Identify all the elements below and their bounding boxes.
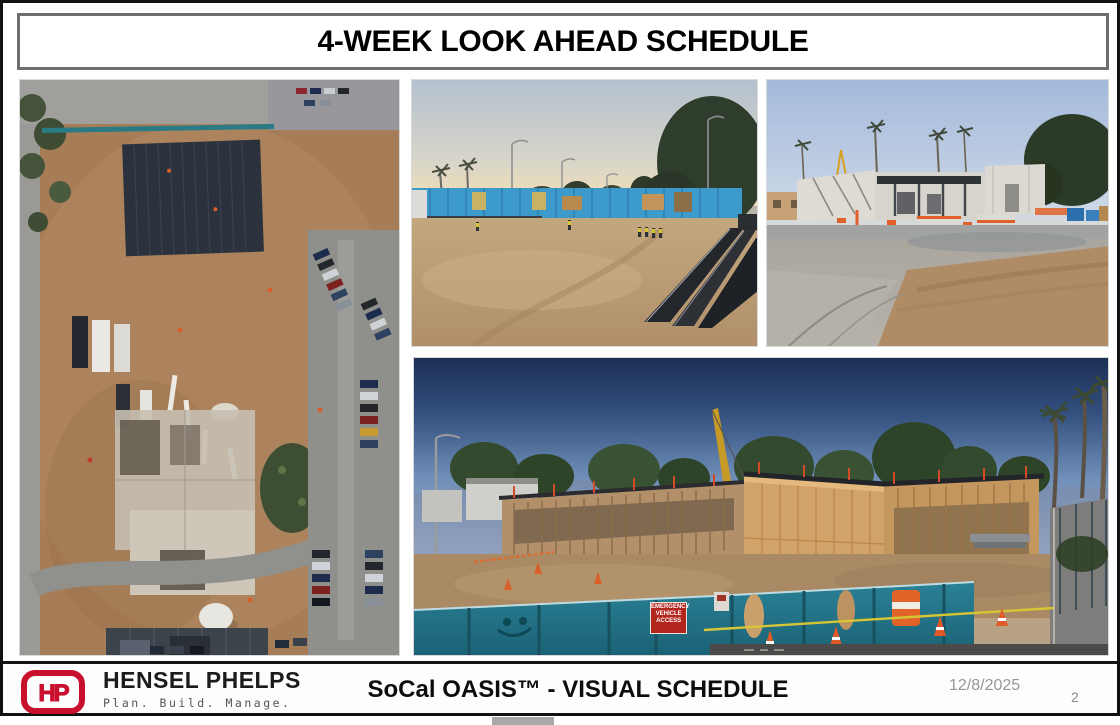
photo-wood-framing-progress: EMERGENCY VEHICLE ACCESS — [413, 357, 1109, 656]
app-window: 4-WEEK LOOK AHEAD SCHEDULE — [0, 0, 1120, 725]
photo-steel-beam-laydown — [411, 79, 758, 347]
brand-block: HENSEL PHELPS Plan. Build. Manage. — [103, 667, 301, 710]
slide-footer: HP HENSEL PHELPS Plan. Build. Manage. So… — [3, 661, 1117, 713]
horizontal-scrollbar-thumb[interactable] — [492, 717, 554, 725]
emergency-vehicle-access-sign: EMERGENCY VEHICLE ACCESS — [650, 602, 687, 635]
framing-photo-art — [414, 358, 1109, 656]
photo-concrete-tilt-up-walls — [766, 79, 1109, 347]
aerial-site-photo-art — [20, 80, 400, 656]
slide-title-box: 4-WEEK LOOK AHEAD SCHEDULE — [17, 13, 1109, 70]
slide: 4-WEEK LOOK AHEAD SCHEDULE — [0, 0, 1120, 716]
company-tagline: Plan. Build. Manage. — [103, 696, 301, 710]
company-name: HENSEL PHELPS — [103, 667, 301, 694]
tiltup-photo-art — [767, 80, 1109, 347]
slide-title: 4-WEEK LOOK AHEAD SCHEDULE — [317, 25, 808, 59]
logo-monogram: HP — [38, 680, 69, 707]
hensel-phelps-logo: HP — [20, 669, 86, 715]
dusk-site-photo-art — [412, 80, 758, 347]
slide-date: 12/8/2025 — [949, 677, 1020, 695]
slide-caption: SoCal OASIS™ - VISUAL SCHEDULE — [343, 676, 813, 704]
photo-aerial-site-overview — [19, 79, 400, 656]
page-number: 2 — [1071, 689, 1079, 705]
window-bottom-strip — [0, 716, 1120, 725]
